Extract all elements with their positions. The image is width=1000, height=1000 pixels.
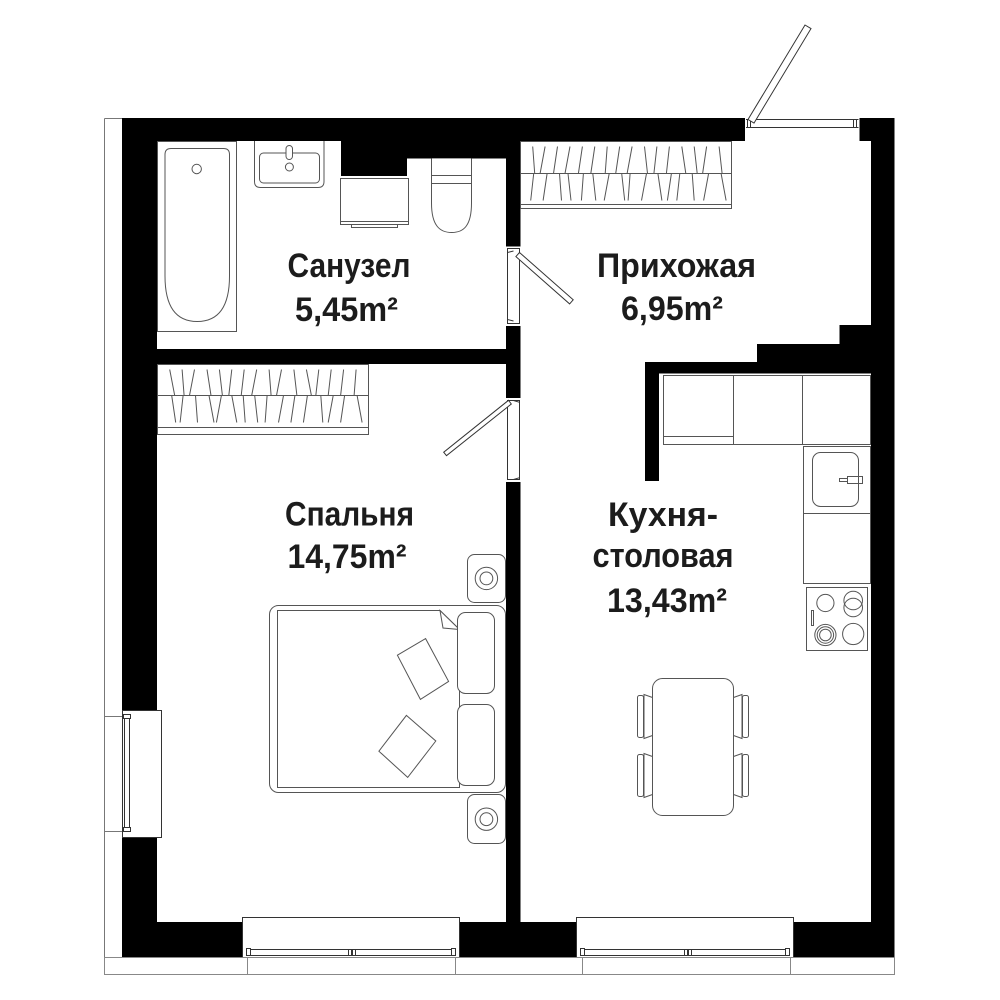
svg-text:Спальня: Спальня [285,496,414,534]
svg-text:6,95m²: 6,95m² [621,290,723,328]
svg-text:Санузел: Санузел [288,247,411,285]
svg-text:14,75m²: 14,75m² [288,538,407,576]
svg-text:Прихожая: Прихожая [597,247,756,285]
svg-text:13,43m²: 13,43m² [607,582,727,620]
svg-text:Кухня-: Кухня- [608,496,718,534]
svg-text:столовая: столовая [593,537,734,575]
svg-text:5,45m²: 5,45m² [295,291,398,329]
